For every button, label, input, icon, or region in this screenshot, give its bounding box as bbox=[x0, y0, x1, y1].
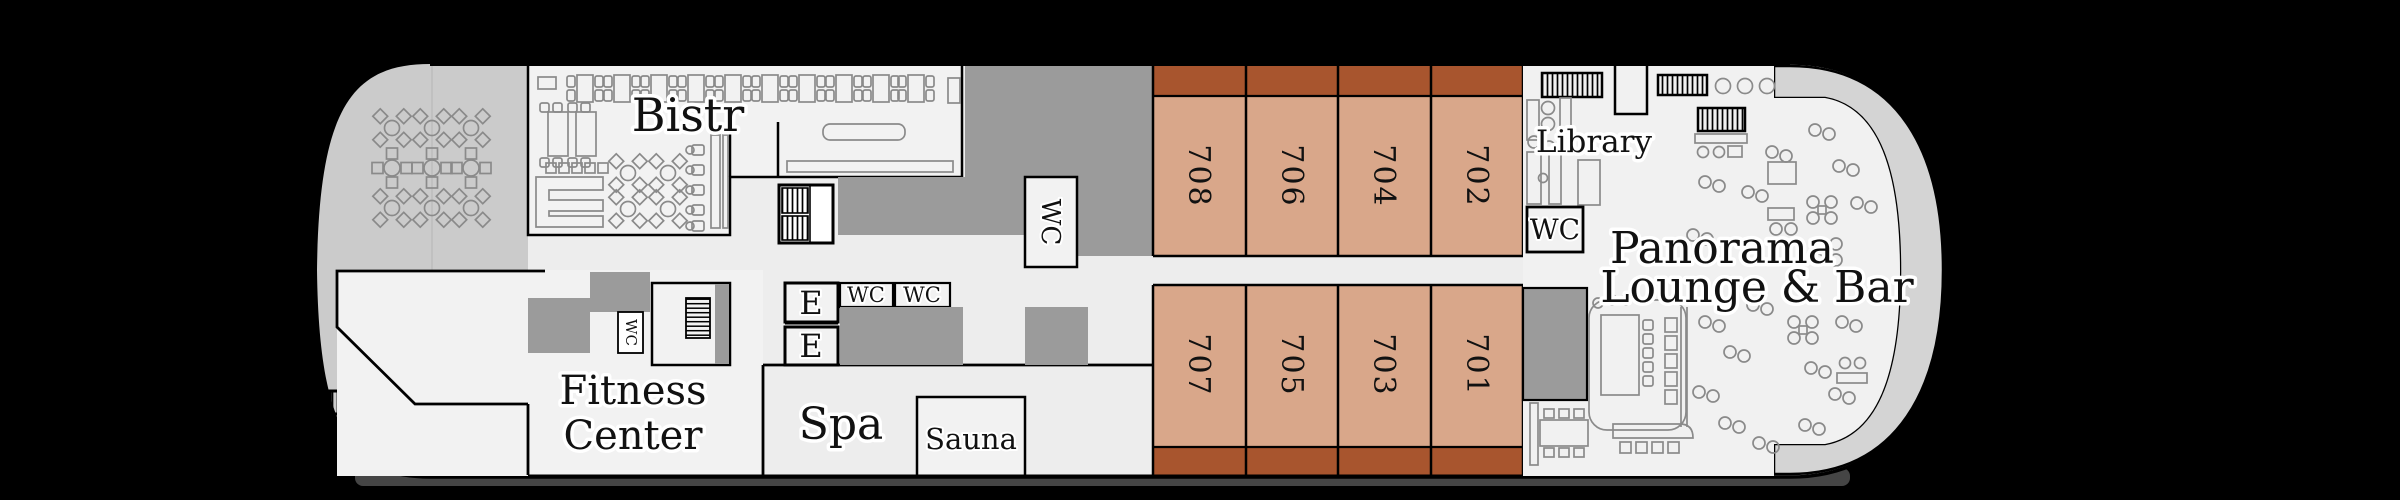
wc-label: WC bbox=[1035, 199, 1065, 246]
cabin-number: 708 bbox=[1181, 144, 1216, 207]
elevator-label: E bbox=[799, 327, 822, 365]
fitness-stair-room bbox=[652, 283, 730, 365]
cabin-706[interactable]: 706 bbox=[1246, 66, 1338, 256]
stairs-icon[interactable] bbox=[686, 298, 710, 338]
elevator-label: E bbox=[799, 284, 822, 322]
service-block bbox=[838, 177, 967, 235]
service-block bbox=[1025, 307, 1088, 365]
corridor-wc-left[interactable]: WC bbox=[840, 283, 893, 307]
main-stairs[interactable] bbox=[779, 185, 833, 243]
deck-plan-canvas: WC Fitness Center Spa Sauna bbox=[0, 0, 2400, 500]
cabin-702[interactable]: 702 bbox=[1431, 66, 1523, 256]
cabin-number: 703 bbox=[1366, 333, 1401, 396]
cabin-number: 705 bbox=[1274, 333, 1309, 396]
wc-label: WC bbox=[903, 283, 941, 307]
cabin-number: 704 bbox=[1366, 144, 1401, 207]
library-wc[interactable]: WC bbox=[1527, 207, 1583, 252]
elevator-icon[interactable]: E bbox=[785, 283, 838, 322]
cabin-number: 706 bbox=[1274, 144, 1309, 207]
stairs-icon[interactable] bbox=[1698, 108, 1745, 131]
sauna-room[interactable]: Sauna bbox=[917, 397, 1025, 476]
fitness-label-line1: Fitness bbox=[559, 368, 706, 414]
cabin-704[interactable]: 704 bbox=[1338, 66, 1431, 256]
elevator-icon[interactable]: E bbox=[785, 327, 838, 365]
corridor-wc-right[interactable]: WC bbox=[895, 283, 950, 307]
stairs-icon[interactable] bbox=[1658, 75, 1707, 95]
wc-label: WC bbox=[622, 319, 640, 346]
service-block bbox=[1077, 233, 1152, 256]
service-block bbox=[1523, 288, 1587, 400]
cabins-lower: 707 705 703 701 bbox=[1153, 285, 1523, 477]
stairs-icon[interactable] bbox=[1542, 73, 1602, 97]
service-block bbox=[840, 307, 963, 365]
wc-label: WC bbox=[847, 283, 885, 307]
fitness-label-line2: Center bbox=[564, 413, 704, 459]
cabin-number: 707 bbox=[1181, 333, 1216, 396]
cabin-number: 702 bbox=[1459, 144, 1494, 207]
bistro-label: Bistr bbox=[632, 88, 745, 142]
fitness-wc[interactable]: WC bbox=[618, 312, 643, 353]
deck-plan-svg: WC Fitness Center Spa Sauna bbox=[0, 0, 2400, 500]
cabins-upper: 708 706 704 702 bbox=[1153, 64, 1523, 256]
spa-label: Spa bbox=[799, 399, 884, 450]
service-block bbox=[528, 298, 590, 353]
sauna-label: Sauna bbox=[925, 422, 1017, 456]
cabin-708[interactable]: 708 bbox=[1153, 66, 1246, 256]
library-label: Library bbox=[1536, 124, 1652, 160]
lounge-label-line2: Lounge & Bar bbox=[1600, 262, 1914, 313]
wc-label: WC bbox=[1530, 213, 1580, 246]
mid-wc[interactable]: WC bbox=[1025, 177, 1077, 267]
service-block bbox=[590, 272, 650, 312]
cabin-number: 701 bbox=[1459, 333, 1494, 396]
